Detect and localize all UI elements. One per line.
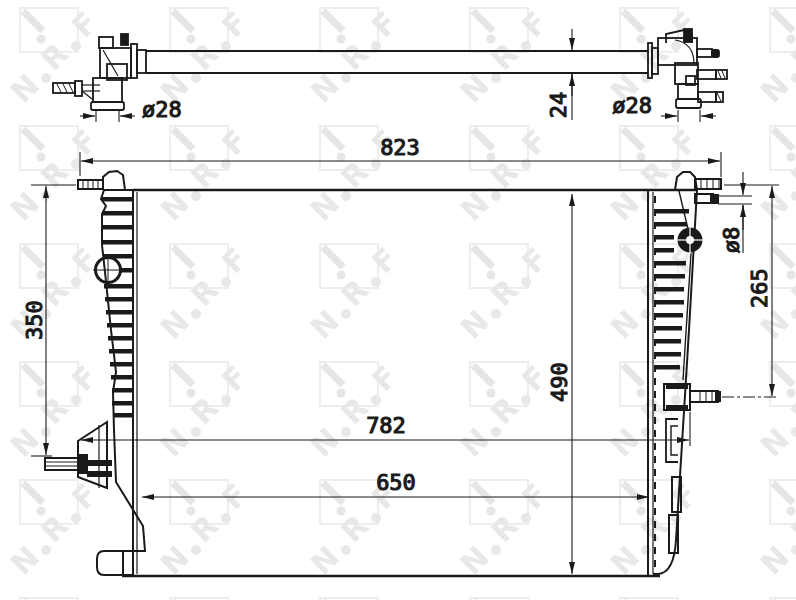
dim-label-650: 650 <box>376 470 416 495</box>
dim-label-dia28-right: ø28 <box>612 93 652 118</box>
drawing-canvas: N R F <box>0 0 796 600</box>
dim-label-490: 490 <box>547 362 572 402</box>
dim-label-823: 823 <box>380 135 420 160</box>
dim-label-350: 350 <box>22 300 47 340</box>
dim-label-782: 782 <box>366 413 406 438</box>
drawing-page: N R F <box>0 0 796 600</box>
dim-label-24: 24 <box>546 92 571 119</box>
dim-label-dia8: ø8 <box>719 227 744 254</box>
dim-label-dia28-left: ø28 <box>142 97 182 122</box>
dim-label-265: 265 <box>747 268 772 308</box>
